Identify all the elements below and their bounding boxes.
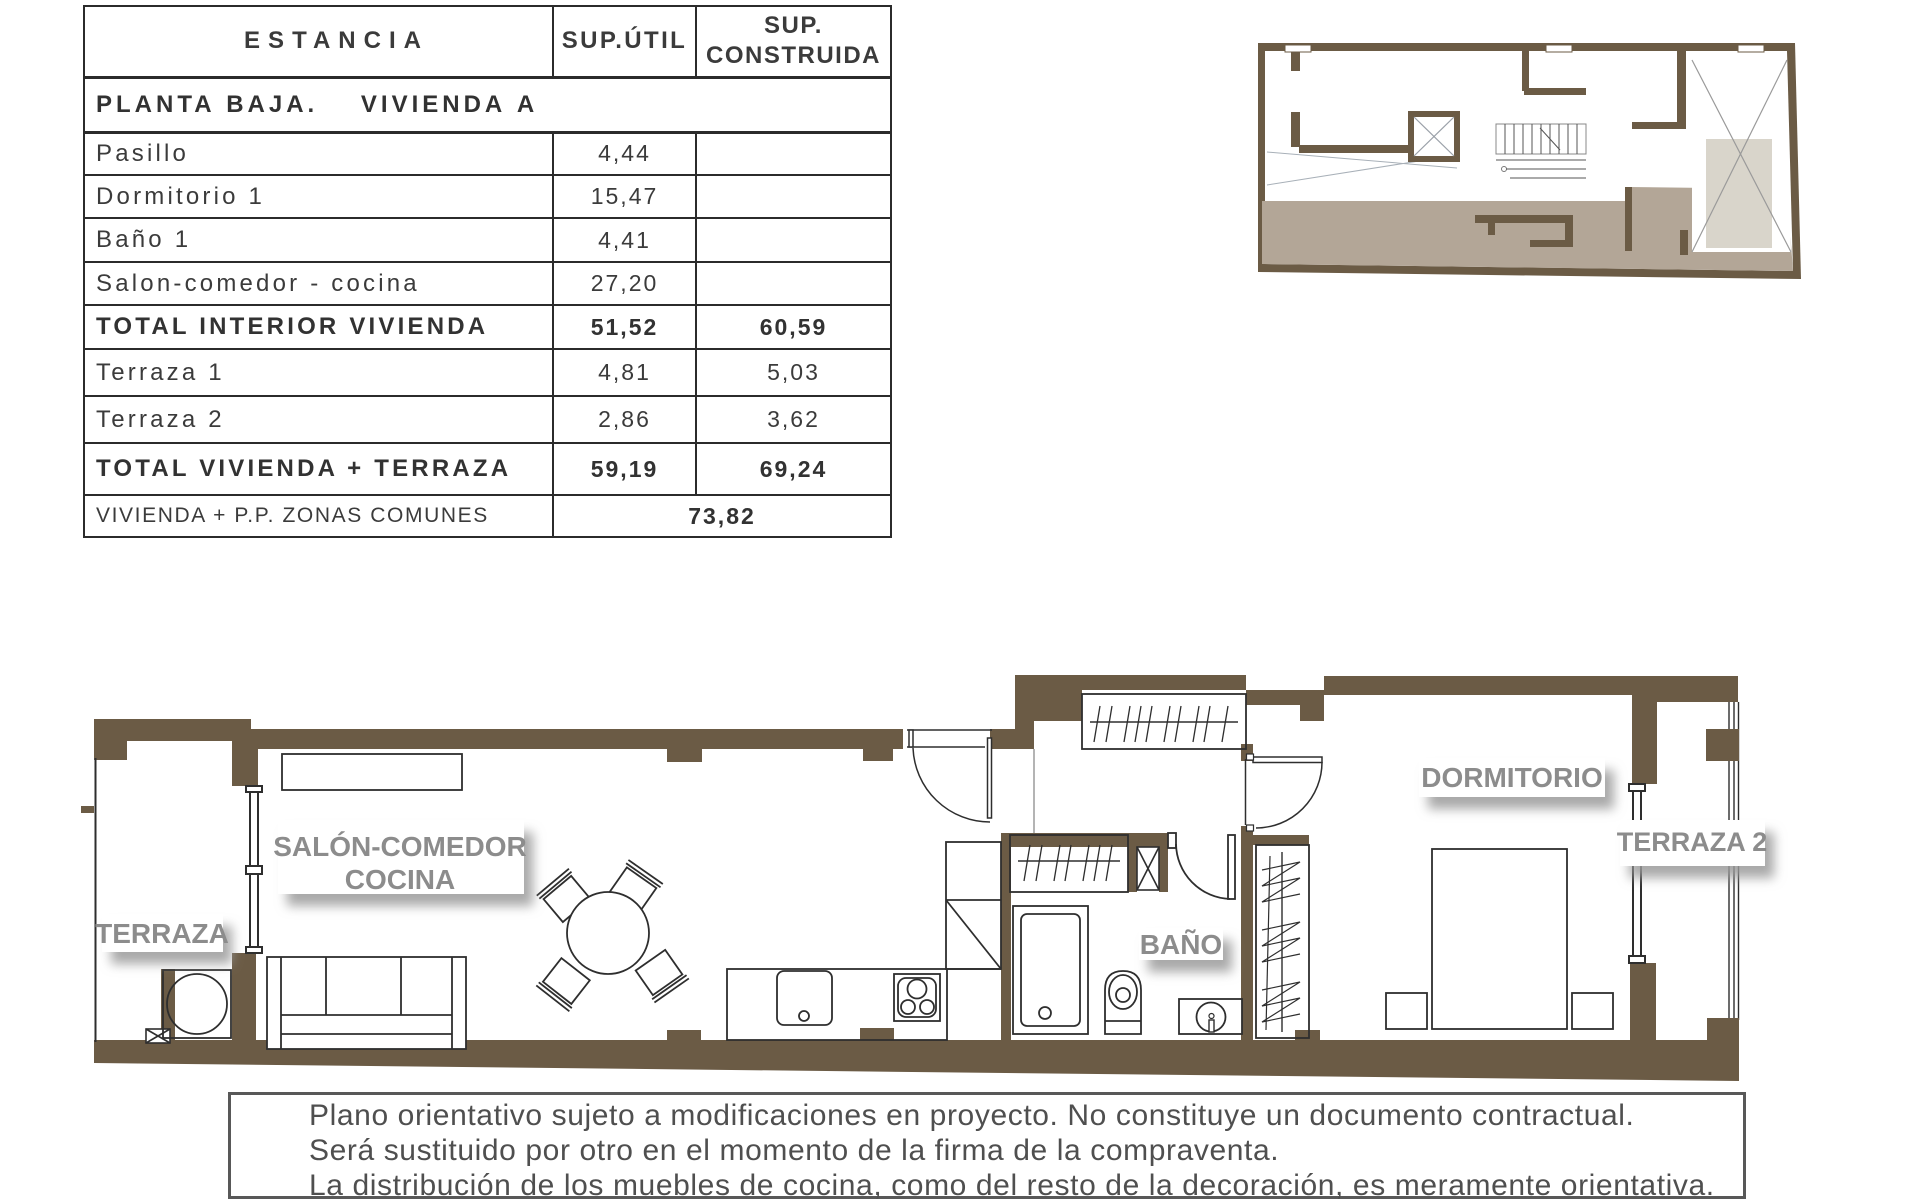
svg-text:BAÑO: BAÑO — [1140, 929, 1222, 960]
svg-text:DORMITORIO: DORMITORIO — [1421, 762, 1602, 793]
svg-text:TERRAZA 2: TERRAZA 2 — [1617, 827, 1768, 857]
svg-text:SALÓN-COMEDOR: SALÓN-COMEDOR — [273, 831, 527, 862]
svg-text:TERRAZA: TERRAZA — [95, 918, 229, 949]
svg-text:COCINA: COCINA — [345, 864, 455, 895]
